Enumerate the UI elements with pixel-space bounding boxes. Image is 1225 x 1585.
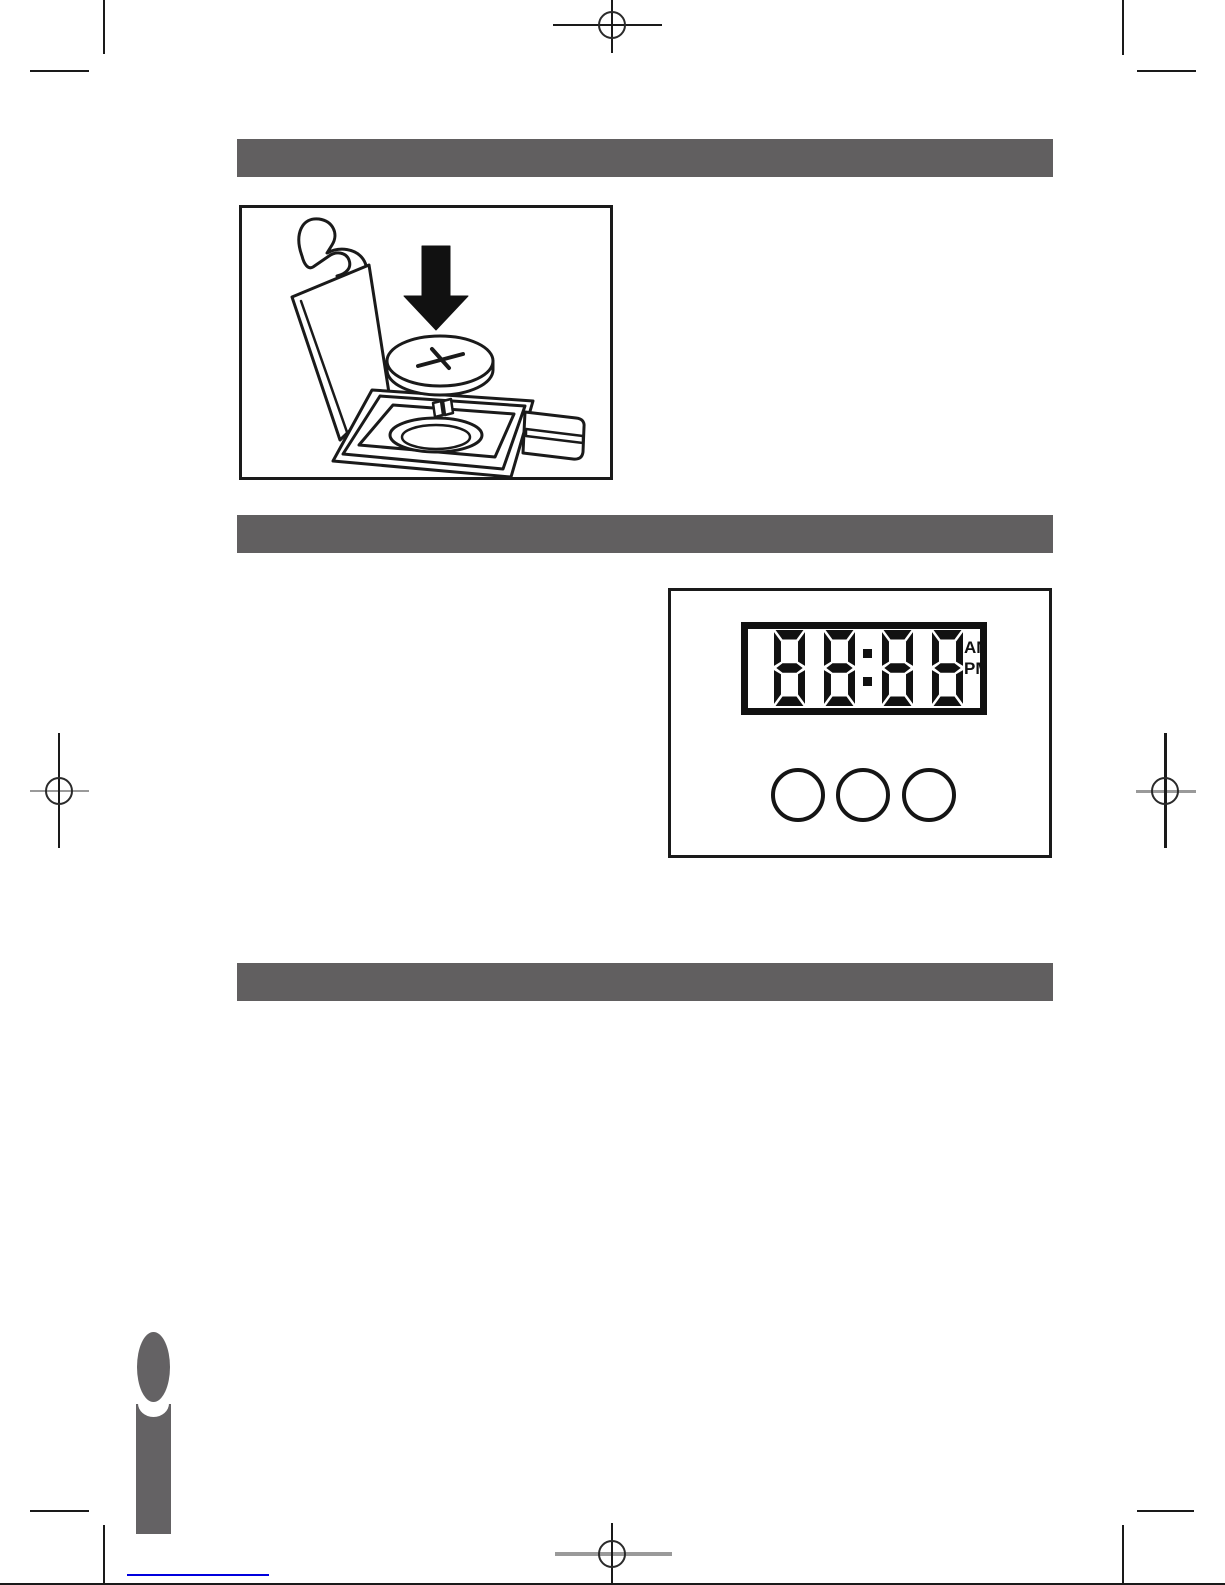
clock-button-2 — [836, 768, 890, 822]
registration-circle — [598, 1540, 626, 1568]
clock-button-1 — [771, 768, 825, 822]
crop-mark-top-left-horizontal — [30, 70, 89, 72]
section-header-bar-1 — [237, 139, 1053, 177]
scanned-manual-page: { "document": { "kind": "instruction-man… — [0, 0, 1225, 1585]
down-arrow-icon — [404, 246, 468, 330]
clock-button-3 — [902, 768, 956, 822]
link-underline[interactable] — [127, 1574, 269, 1576]
crop-mark-bottom-right-vertical — [1122, 1525, 1124, 1585]
crop-mark-bottom-left-vertical — [103, 1525, 105, 1585]
section-header-bar-3 — [237, 963, 1053, 1001]
crop-mark-top-right-horizontal — [1137, 70, 1196, 72]
crop-mark-bottom-left-horizontal — [30, 1510, 89, 1512]
battery-clip-icon — [433, 401, 443, 417]
battery-diagram — [242, 208, 610, 477]
info-icon-stem — [136, 1404, 171, 1534]
clock-display: AM PM — [741, 622, 987, 715]
crop-mark-top-left-vertical — [103, 0, 105, 54]
section-header-bar-2 — [237, 515, 1053, 553]
registration-circle — [1151, 777, 1179, 805]
battery-figure — [239, 205, 613, 480]
registration-circle — [45, 777, 73, 805]
am-label: AM — [964, 638, 987, 657]
crop-mark-top-right-vertical — [1122, 0, 1124, 55]
crop-mark-bottom-right-horizontal — [1137, 1510, 1194, 1512]
registration-circle — [598, 11, 626, 39]
pm-label: PM — [964, 659, 987, 678]
clock-figure: AM PM — [668, 588, 1052, 858]
info-icon-dot — [137, 1332, 170, 1402]
